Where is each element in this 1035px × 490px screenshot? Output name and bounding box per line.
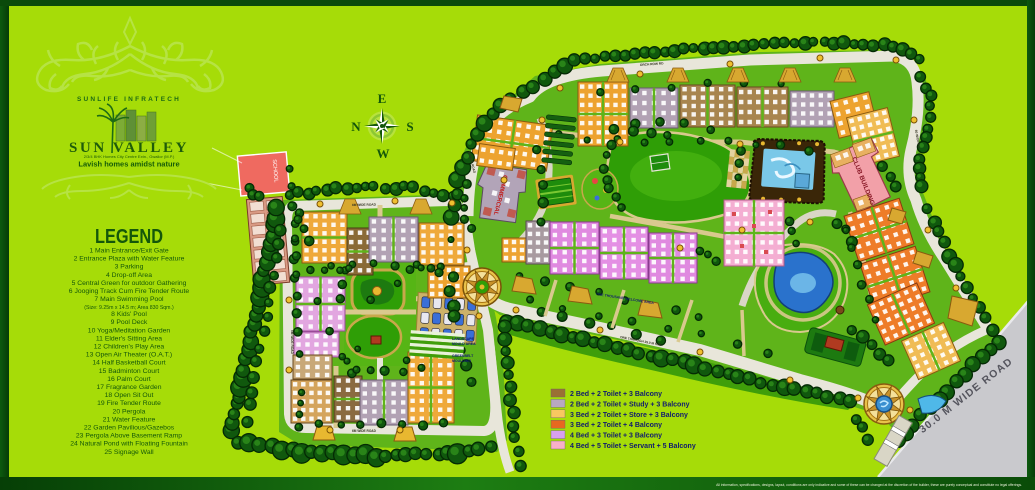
svg-text:6M WIDE ROAD: 6M WIDE ROAD [352, 429, 377, 433]
svg-text:GREENBELT: GREENBELT [452, 354, 474, 358]
svg-text:W: W [377, 146, 390, 161]
svg-text:2/3/4 BHK Homes City Centre: 2/3/4 BHK Homes City Centre Extn., Gwali… [84, 154, 175, 159]
svg-text:13 Open Air Theater (O.A.T.): 13 Open Air Theater (O.A.T.) [86, 352, 172, 359]
svg-text:22 Garden Pavilious/Gazebos: 22 Garden Pavilious/Gazebos [84, 425, 175, 432]
svg-text:14 Half Basketball Court: 14 Half Basketball Court [92, 360, 165, 367]
svg-text:LANDSCAPE: LANDSCAPE [452, 337, 474, 341]
svg-text:5 Central Green for outdoor Ga: 5 Central Green for outdoor Gathering [72, 280, 187, 287]
svg-text:N: N [351, 119, 361, 134]
svg-text:6 Jooging Track Cum Fire Tende: 6 Jooging Track Cum Fire Tender Route [69, 288, 190, 295]
svg-text:4 Drop-off Area: 4 Drop-off Area [106, 272, 152, 279]
svg-text:All information, specification: All information, specifications, designs… [716, 483, 1022, 487]
svg-text:E: E [378, 91, 387, 106]
svg-text:25 Signage Wall: 25 Signage Wall [104, 449, 154, 456]
svg-text:MOULDING: MOULDING [452, 359, 471, 363]
svg-text:6M WIDE ROAD: 6M WIDE ROAD [290, 330, 294, 355]
svg-text:21 Water Feature: 21 Water Feature [103, 416, 156, 423]
svg-text:18 Open Sit Out: 18 Open Sit Out [105, 392, 154, 399]
svg-text:3 Bed + 2 Toilet + Store + 3 B: 3 Bed + 2 Toilet + Store + 3 Balcony [570, 412, 688, 419]
svg-text:2 Bed + 2 Toilet + 3 Balcony: 2 Bed + 2 Toilet + 3 Balcony [570, 391, 662, 398]
svg-text:17 Fragrance Garden: 17 Fragrance Garden [97, 384, 162, 391]
svg-text:3 Parking: 3 Parking [115, 264, 144, 271]
svg-text:S: S [406, 119, 413, 134]
svg-text:2 Bed + 2 Toilet + Study + 3 B: 2 Bed + 2 Toilet + Study + 3 Balcony [570, 401, 690, 408]
svg-text:23 Pergola Above Basement Ramp: 23 Pergola Above Basement Ramp [76, 433, 182, 440]
svg-text:16 Palm Court: 16 Palm Court [107, 376, 151, 383]
svg-text:MOULD AREA: MOULD AREA [452, 342, 476, 346]
svg-text:19 Fire Tender Route: 19 Fire Tender Route [97, 400, 161, 407]
svg-text:7 Main Swimming Pool: 7 Main Swimming Pool [94, 296, 164, 303]
svg-text:10 Yoga/Meditation Garden: 10 Yoga/Meditation Garden [88, 327, 171, 334]
svg-text:SUNLIFE INFRATECH: SUNLIFE INFRATECH [77, 96, 181, 103]
svg-text:4 Bed + 5 Toilet + Servant + 5: 4 Bed + 5 Toilet + Servant + 5 Balcony [570, 443, 696, 450]
svg-text:2 Entrance Plaza with Water Fe: 2 Entrance Plaza with Water Feature [74, 256, 185, 263]
svg-text:9 Pool Deck: 9 Pool Deck [111, 319, 148, 326]
svg-text:LEGEND: LEGEND [95, 226, 163, 248]
svg-text:8 Kids' Pool: 8 Kids' Pool [111, 311, 147, 318]
svg-text:12 Children's Play Area: 12 Children's Play Area [94, 344, 165, 351]
svg-text:4 Bed + 3 Toilet + 3 Balcony: 4 Bed + 3 Toilet + 3 Balcony [570, 433, 662, 440]
svg-text:24 Natural Pond with Floating: 24 Natural Pond with Floating Fountain [70, 441, 188, 448]
svg-text:Lavish homes amidst nature: Lavish homes amidst nature [78, 160, 179, 169]
svg-text:1 Main Entrance/Exit Gate: 1 Main Entrance/Exit Gate [89, 248, 169, 255]
svg-text:15 Badminton Court: 15 Badminton Court [99, 368, 160, 375]
svg-text:11 Elder's Sitting Area: 11 Elder's Sitting Area [96, 335, 162, 342]
svg-text:20 Pergola: 20 Pergola [113, 408, 146, 415]
svg-text:3 Bed + 2 Toilet + 4 Balcony: 3 Bed + 2 Toilet + 4 Balcony [570, 422, 662, 429]
svg-text:6M WIDE ROAD: 6M WIDE ROAD [352, 203, 377, 207]
